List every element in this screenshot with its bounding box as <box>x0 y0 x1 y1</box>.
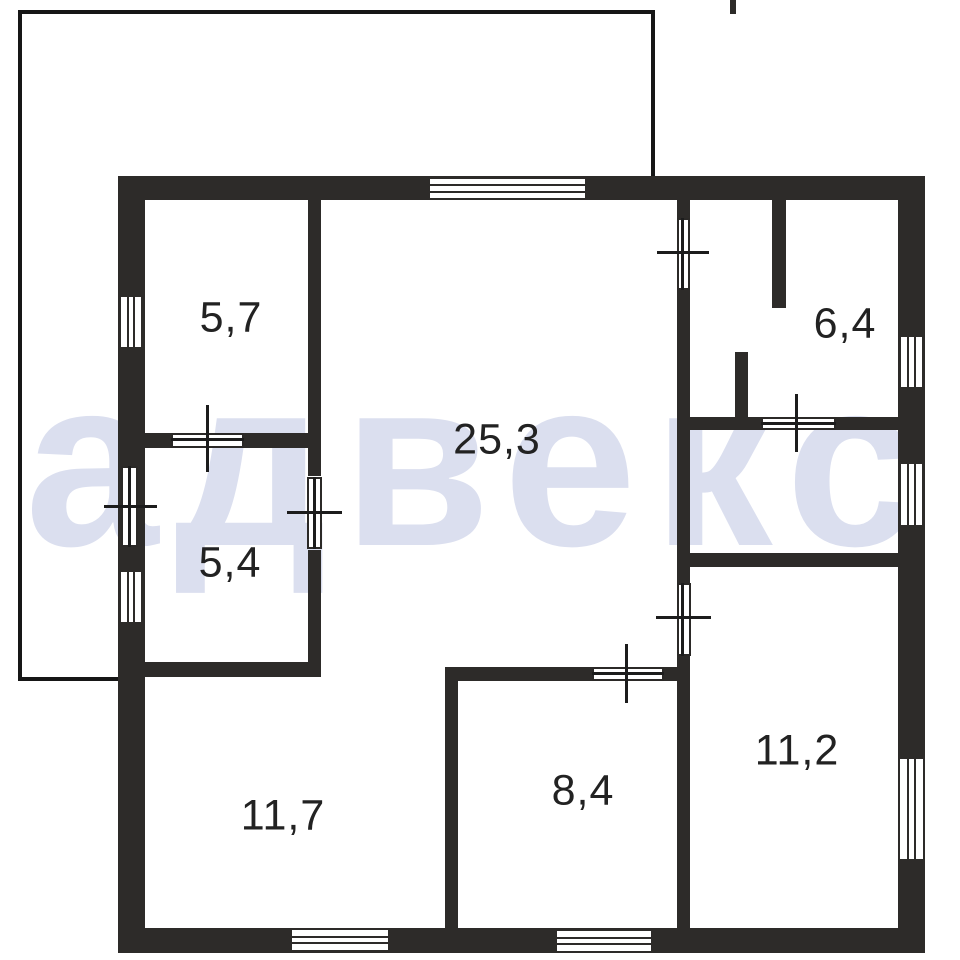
interior-wall-8-4-top-left <box>445 667 593 681</box>
door-leaf-hall-to-11-2 <box>677 583 691 656</box>
window-symbol-bottom-middle <box>555 929 653 953</box>
interior-wall-5-4-bottom <box>145 662 321 677</box>
door-axis-cross <box>592 672 664 675</box>
window-symbol-right-upper <box>899 335 924 389</box>
window-symbol-bottom-left <box>290 928 390 952</box>
door-axis-cross <box>681 583 684 656</box>
interior-wall-center-b <box>677 290 690 583</box>
interior-wall-5-4-right-lower <box>308 550 321 667</box>
interior-wall-center-a <box>677 200 690 218</box>
interior-wall-5-7-bottom-right <box>243 433 308 448</box>
window-symbol-right-middle <box>899 462 924 527</box>
interior-wall-6-4-bottom-left <box>690 417 762 430</box>
room-label-8-4: 8,4 <box>552 767 615 816</box>
door-axis-cross <box>171 438 244 441</box>
window-symbol-left-lower <box>119 570 143 624</box>
room-label-6-4: 6,4 <box>814 300 877 349</box>
room-label-5-7: 5,7 <box>200 294 263 343</box>
exterior-wall-left <box>118 176 145 953</box>
floor-plan: адвекс 5,7 25,3 6,4 <box>0 0 960 960</box>
interior-wall-11-2-top <box>690 553 900 567</box>
door-axis-cross <box>128 466 131 547</box>
window-symbol-right-lower <box>898 757 925 861</box>
door-axis-cross <box>313 477 316 549</box>
room-label-5-4: 5,4 <box>199 539 262 588</box>
interior-wall-8-4-left <box>445 667 458 928</box>
interior-wall-center-c <box>677 655 690 928</box>
window-symbol-top <box>428 177 587 200</box>
room-label-11-2: 11,2 <box>755 727 840 776</box>
door-axis-cross <box>761 422 836 425</box>
exterior-wall-bottom <box>118 928 925 953</box>
door-axis-cross <box>681 218 684 290</box>
interior-wall-5-7-bottom-left <box>145 433 172 448</box>
interior-wall-5-7-right-upper <box>308 200 321 476</box>
interior-wall-8-4-top-right <box>663 667 677 681</box>
room-label-25-3: 25,3 <box>453 416 541 465</box>
interior-wall-6-4-bottom-right <box>835 417 900 430</box>
window-symbol-left-upper <box>119 295 143 349</box>
stray-mark <box>730 0 736 14</box>
room-label-11-7: 11,7 <box>241 792 326 841</box>
interior-wall-hall-partition <box>772 200 786 308</box>
